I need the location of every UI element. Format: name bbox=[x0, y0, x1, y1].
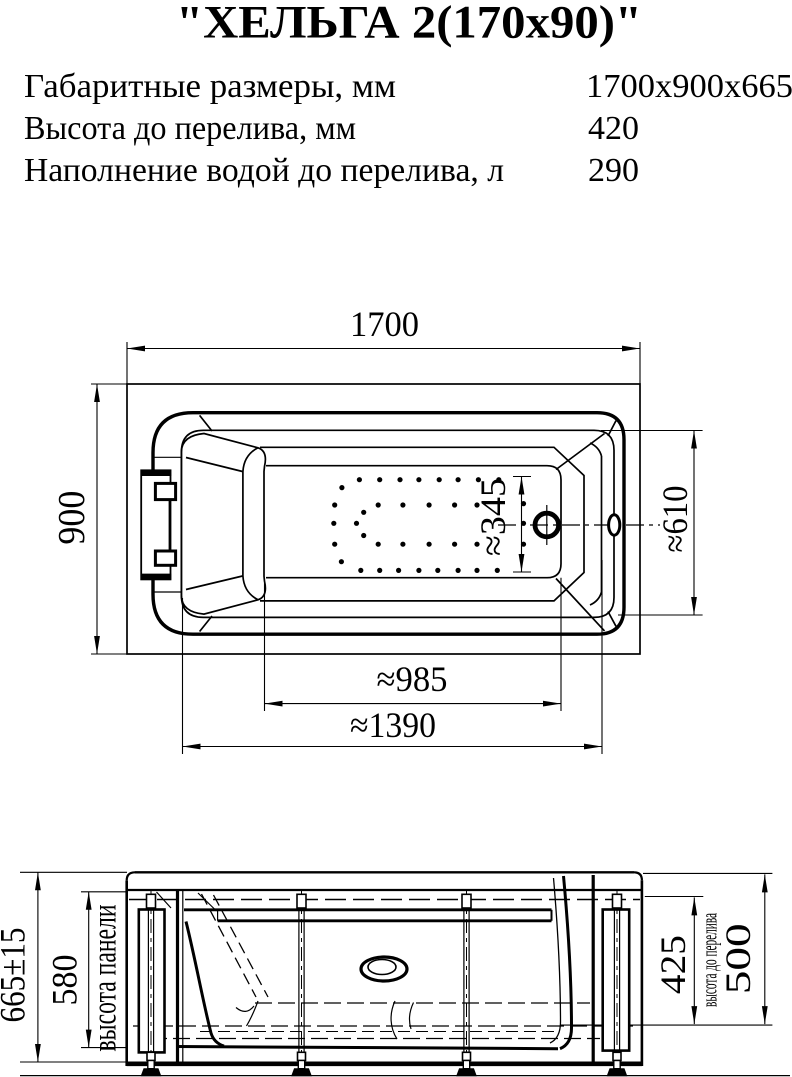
svg-text:Габаритные размеры, мм: Габаритные размеры, мм bbox=[24, 68, 396, 105]
svg-text:≈610: ≈610 bbox=[655, 486, 695, 553]
svg-text:Наполнение водой до перелива,: Наполнение водой до перелива, л bbox=[24, 152, 504, 189]
svg-text:500: 500 bbox=[718, 923, 758, 994]
svg-text:580: 580 bbox=[45, 955, 85, 1006]
svg-text:"ХЕЛЬГА 2(170х90)": "ХЕЛЬГА 2(170х90)" bbox=[176, 0, 642, 49]
svg-text:≈1390: ≈1390 bbox=[350, 705, 436, 745]
svg-text:Высота до перелива, мм: Высота до перелива, мм bbox=[24, 110, 356, 147]
svg-text:420: 420 bbox=[588, 110, 639, 147]
svg-text:900: 900 bbox=[51, 491, 93, 545]
svg-text:290: 290 bbox=[588, 152, 639, 189]
svg-text:≈345: ≈345 bbox=[473, 478, 513, 556]
svg-text:высота панели: высота панели bbox=[87, 905, 124, 1052]
svg-text:1700х900х665: 1700х900х665 bbox=[586, 68, 792, 105]
svg-text:≈985: ≈985 bbox=[377, 659, 448, 699]
svg-text:425: 425 bbox=[653, 935, 693, 994]
svg-text:665±15: 665±15 bbox=[0, 928, 33, 1023]
svg-text:1700: 1700 bbox=[350, 304, 419, 344]
